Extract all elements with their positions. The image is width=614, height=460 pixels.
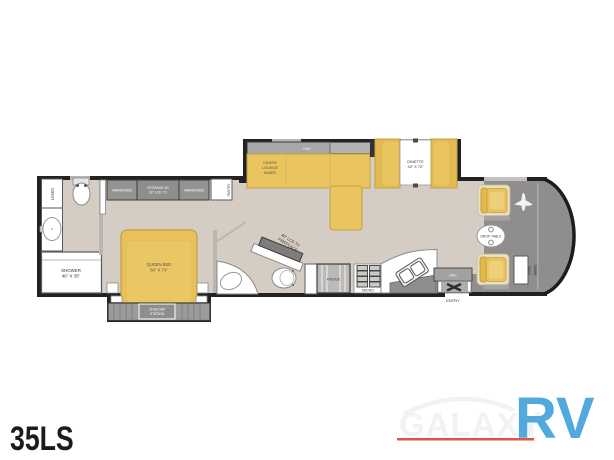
svg-text:35LS: 35LS — [10, 419, 74, 458]
svg-text:MICRO: MICRO — [362, 289, 374, 293]
svg-text:QUEEN BED: QUEEN BED — [147, 262, 172, 267]
svg-text:W/BED: W/BED — [264, 171, 277, 175]
svg-text:OHC: OHC — [303, 147, 311, 151]
svg-text:FRIDGE: FRIDGE — [327, 278, 341, 282]
svg-text:PANTRY: PANTRY — [227, 183, 231, 197]
svg-text:WARDROBE: WARDROBE — [184, 189, 205, 193]
svg-text:RV: RV — [515, 386, 595, 451]
svg-text:32" LCD TV: 32" LCD TV — [149, 191, 168, 195]
svg-text:ENTRY: ENTRY — [446, 298, 460, 303]
svg-text:46" X 35": 46" X 35" — [62, 274, 81, 279]
svg-text:DROP TABLE: DROP TABLE — [480, 235, 502, 239]
svg-text:ABOVE: ABOVE — [534, 265, 538, 276]
svg-text:WARDROBE: WARDROBE — [112, 189, 133, 193]
svg-text:CHAISE: CHAISE — [263, 161, 278, 165]
svg-text:STATION: STATION — [150, 312, 165, 316]
svg-text:CHG/CHIP: CHG/CHIP — [149, 308, 166, 312]
svg-text:LINEN: LINEN — [50, 188, 55, 200]
svg-text:BUNK: BUNK — [528, 265, 532, 275]
svg-text:LOUNGE: LOUNGE — [262, 166, 279, 170]
svg-text:STORAGE W/: STORAGE W/ — [147, 186, 169, 190]
svg-text:OHC: OHC — [449, 274, 457, 278]
svg-text:60" X 74": 60" X 74" — [150, 268, 168, 273]
svg-text:DINETTE: DINETTE — [407, 160, 424, 164]
svg-text:SHOWER: SHOWER — [61, 268, 81, 273]
svg-text:40" X 70": 40" X 70" — [408, 165, 424, 169]
